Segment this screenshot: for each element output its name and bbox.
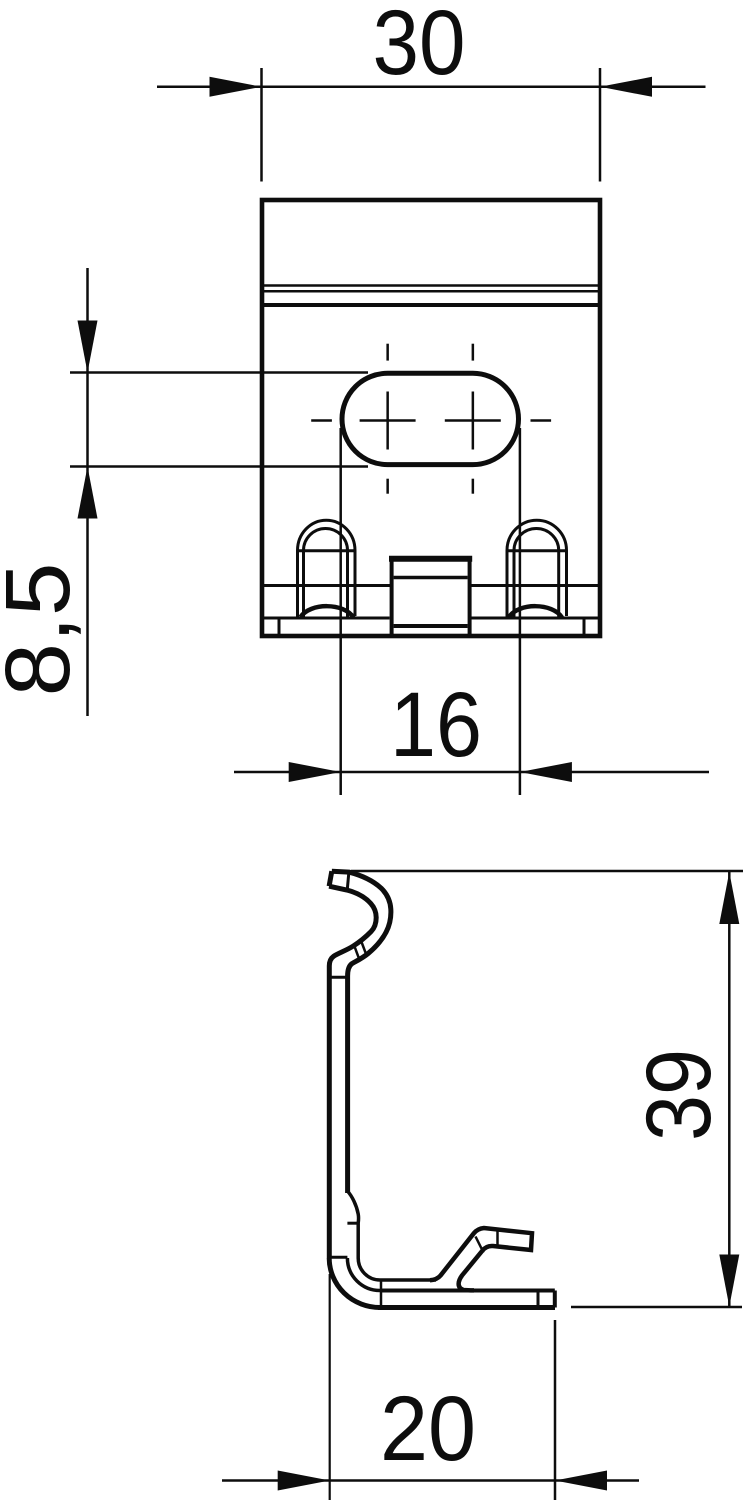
svg-text:20: 20: [380, 1378, 476, 1480]
svg-text:16: 16: [390, 674, 482, 776]
svg-text:39: 39: [628, 1049, 730, 1141]
svg-text:30: 30: [373, 0, 466, 94]
svg-text:8,5: 8,5: [0, 563, 89, 697]
